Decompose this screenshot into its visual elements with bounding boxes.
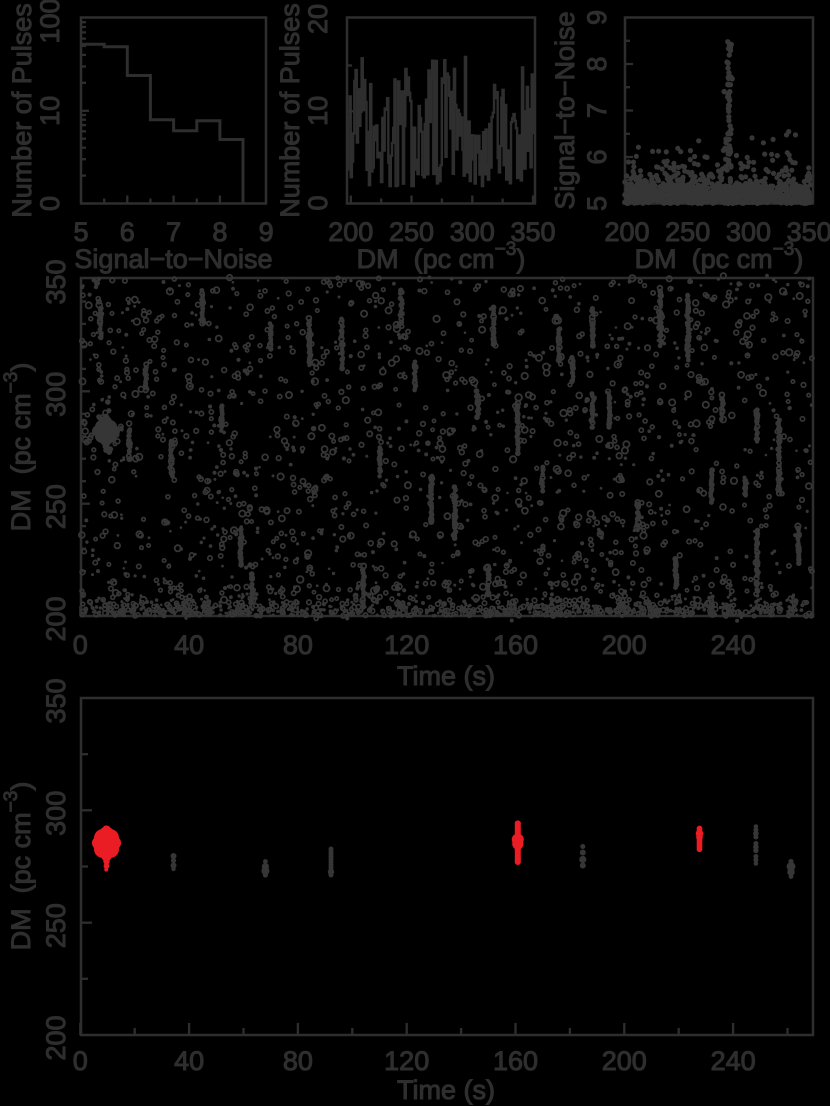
svg-text:40: 40	[174, 630, 204, 660]
svg-text:200: 200	[328, 217, 373, 247]
svg-text:5: 5	[582, 196, 612, 211]
svg-text:8: 8	[212, 217, 227, 247]
svg-text:160: 160	[493, 1046, 538, 1076]
svg-text:200: 200	[604, 217, 649, 247]
svg-text:Signal−to−Noise: Signal−to−Noise	[550, 11, 580, 209]
svg-text:160: 160	[493, 630, 538, 660]
svg-text:250: 250	[41, 484, 71, 529]
svg-text:40: 40	[174, 1046, 204, 1076]
svg-text:20: 20	[303, 4, 333, 34]
svg-text:0: 0	[303, 195, 333, 210]
svg-text:250: 250	[665, 217, 710, 247]
svg-text:100: 100	[35, 0, 65, 44]
svg-text:240: 240	[711, 630, 756, 660]
svg-text:9: 9	[259, 217, 274, 247]
svg-text:7: 7	[582, 103, 612, 118]
svg-text:0: 0	[35, 196, 65, 211]
svg-text:5: 5	[73, 217, 88, 247]
svg-text:250: 250	[41, 903, 71, 948]
svg-text:240: 240	[711, 1046, 756, 1076]
svg-text:7: 7	[166, 217, 181, 247]
svg-text:Time (s): Time (s)	[397, 661, 495, 691]
svg-text:300: 300	[726, 217, 771, 247]
svg-text:80: 80	[283, 1046, 313, 1076]
svg-text:0: 0	[73, 630, 88, 660]
svg-text:9: 9	[582, 10, 612, 25]
svg-text:200: 200	[41, 596, 71, 641]
svg-text:0: 0	[73, 1046, 88, 1076]
svg-text:80: 80	[283, 630, 313, 660]
svg-text:300: 300	[450, 217, 495, 247]
svg-text:8: 8	[582, 56, 612, 71]
svg-text:6: 6	[120, 217, 135, 247]
svg-text:200: 200	[602, 630, 647, 660]
svg-text:350: 350	[41, 678, 71, 723]
svg-text:300: 300	[41, 372, 71, 417]
svg-text:120: 120	[384, 630, 429, 660]
svg-text:Time (s): Time (s)	[397, 1075, 495, 1105]
svg-text:200: 200	[41, 1015, 71, 1060]
svg-text:Number of Pulses: Number of Pulses	[7, 3, 37, 218]
svg-text:Number of Pulses: Number of Pulses	[275, 3, 305, 218]
svg-text:6: 6	[582, 149, 612, 164]
svg-text:Signal−to−Noise: Signal−to−Noise	[74, 244, 272, 274]
svg-text:350: 350	[510, 217, 555, 247]
svg-text:120: 120	[384, 1046, 429, 1076]
svg-text:250: 250	[389, 217, 434, 247]
svg-text:200: 200	[602, 1046, 647, 1076]
svg-text:10: 10	[303, 96, 333, 126]
svg-text:300: 300	[41, 791, 71, 836]
svg-text:350: 350	[41, 259, 71, 304]
svg-text:10: 10	[35, 96, 65, 126]
